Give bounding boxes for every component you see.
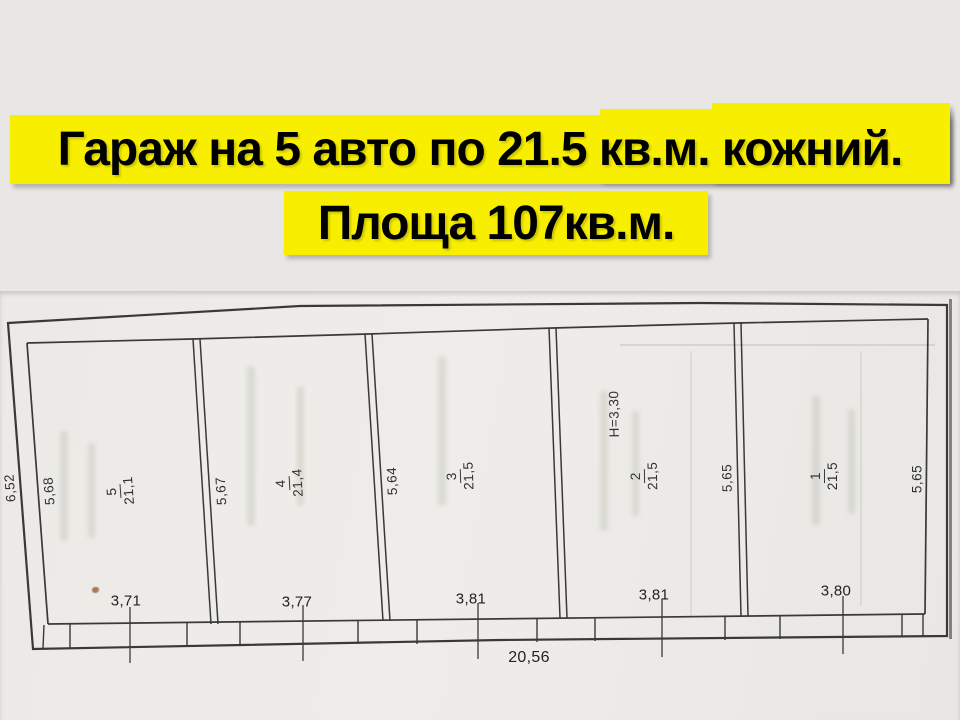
room-area: 21,5 bbox=[825, 462, 841, 490]
dim-wall-2-1: 5,65 bbox=[719, 464, 734, 493]
bleed-artifact bbox=[860, 351, 862, 606]
bleed-artifact bbox=[620, 344, 935, 346]
title-line1: Гараж на 5 авто по 21.5 кв.м. кожний. bbox=[58, 122, 903, 177]
floor-plan-paper: 6,52 5,68 5,67 5,64 5,65 5,65 H=3,30 5 2… bbox=[0, 291, 960, 720]
slide-root: Гараж на 5 авто по 21.5 кв.м. кожний. Пл… bbox=[0, 0, 960, 720]
title-line1-highlight: Гараж на 5 авто по 21.5 кв.м. кожний. bbox=[10, 115, 950, 184]
room-number: 5 bbox=[104, 484, 121, 499]
bleed-artifact bbox=[297, 386, 304, 506]
room-area: 21,1 bbox=[120, 476, 137, 505]
bleed-artifact bbox=[690, 351, 692, 616]
dim-wall-room5-left: 5,68 bbox=[41, 476, 58, 505]
bleed-artifact bbox=[60, 431, 68, 541]
bleed-artifact bbox=[600, 391, 608, 531]
room-label-5: 5 21,1 bbox=[103, 476, 137, 506]
bleed-artifact bbox=[88, 443, 95, 538]
dim-bay-width-4: 3,81 bbox=[639, 587, 669, 604]
title-line2-highlight: Площа 107кв.м. bbox=[284, 191, 708, 255]
dimension-ticks bbox=[130, 596, 843, 663]
paper-fold-line bbox=[949, 299, 952, 639]
ceiling-height-mark: H=3,30 bbox=[606, 390, 622, 437]
dim-wall-right: 5,65 bbox=[910, 465, 925, 493]
dim-bay-width-2: 3,77 bbox=[282, 594, 312, 611]
room-number: 3 bbox=[444, 469, 461, 484]
dim-bay-width-3: 3,81 bbox=[456, 591, 486, 608]
bleed-artifact bbox=[632, 411, 639, 516]
bleed-artifact bbox=[848, 409, 855, 514]
room-area: 21,5 bbox=[460, 461, 476, 490]
room-area: 21,5 bbox=[644, 462, 660, 491]
room-number: 4 bbox=[273, 476, 290, 491]
bleed-artifact bbox=[812, 396, 820, 526]
dim-bay-width-5: 3,80 bbox=[821, 583, 851, 600]
inner-walls bbox=[27, 319, 928, 624]
dim-wall-5-4: 5,67 bbox=[213, 476, 229, 505]
dim-total-width: 20,56 bbox=[508, 649, 550, 667]
dim-outer-left: 6,52 bbox=[2, 473, 19, 502]
title-line2: Площа 107кв.м. bbox=[318, 196, 675, 251]
room-label-3: 3 21,5 bbox=[444, 461, 477, 490]
bleed-artifact bbox=[438, 356, 446, 506]
dim-wall-4-3: 5,64 bbox=[384, 467, 400, 496]
bleed-artifact bbox=[247, 366, 255, 526]
dim-bay-width-1: 3,71 bbox=[111, 593, 141, 610]
